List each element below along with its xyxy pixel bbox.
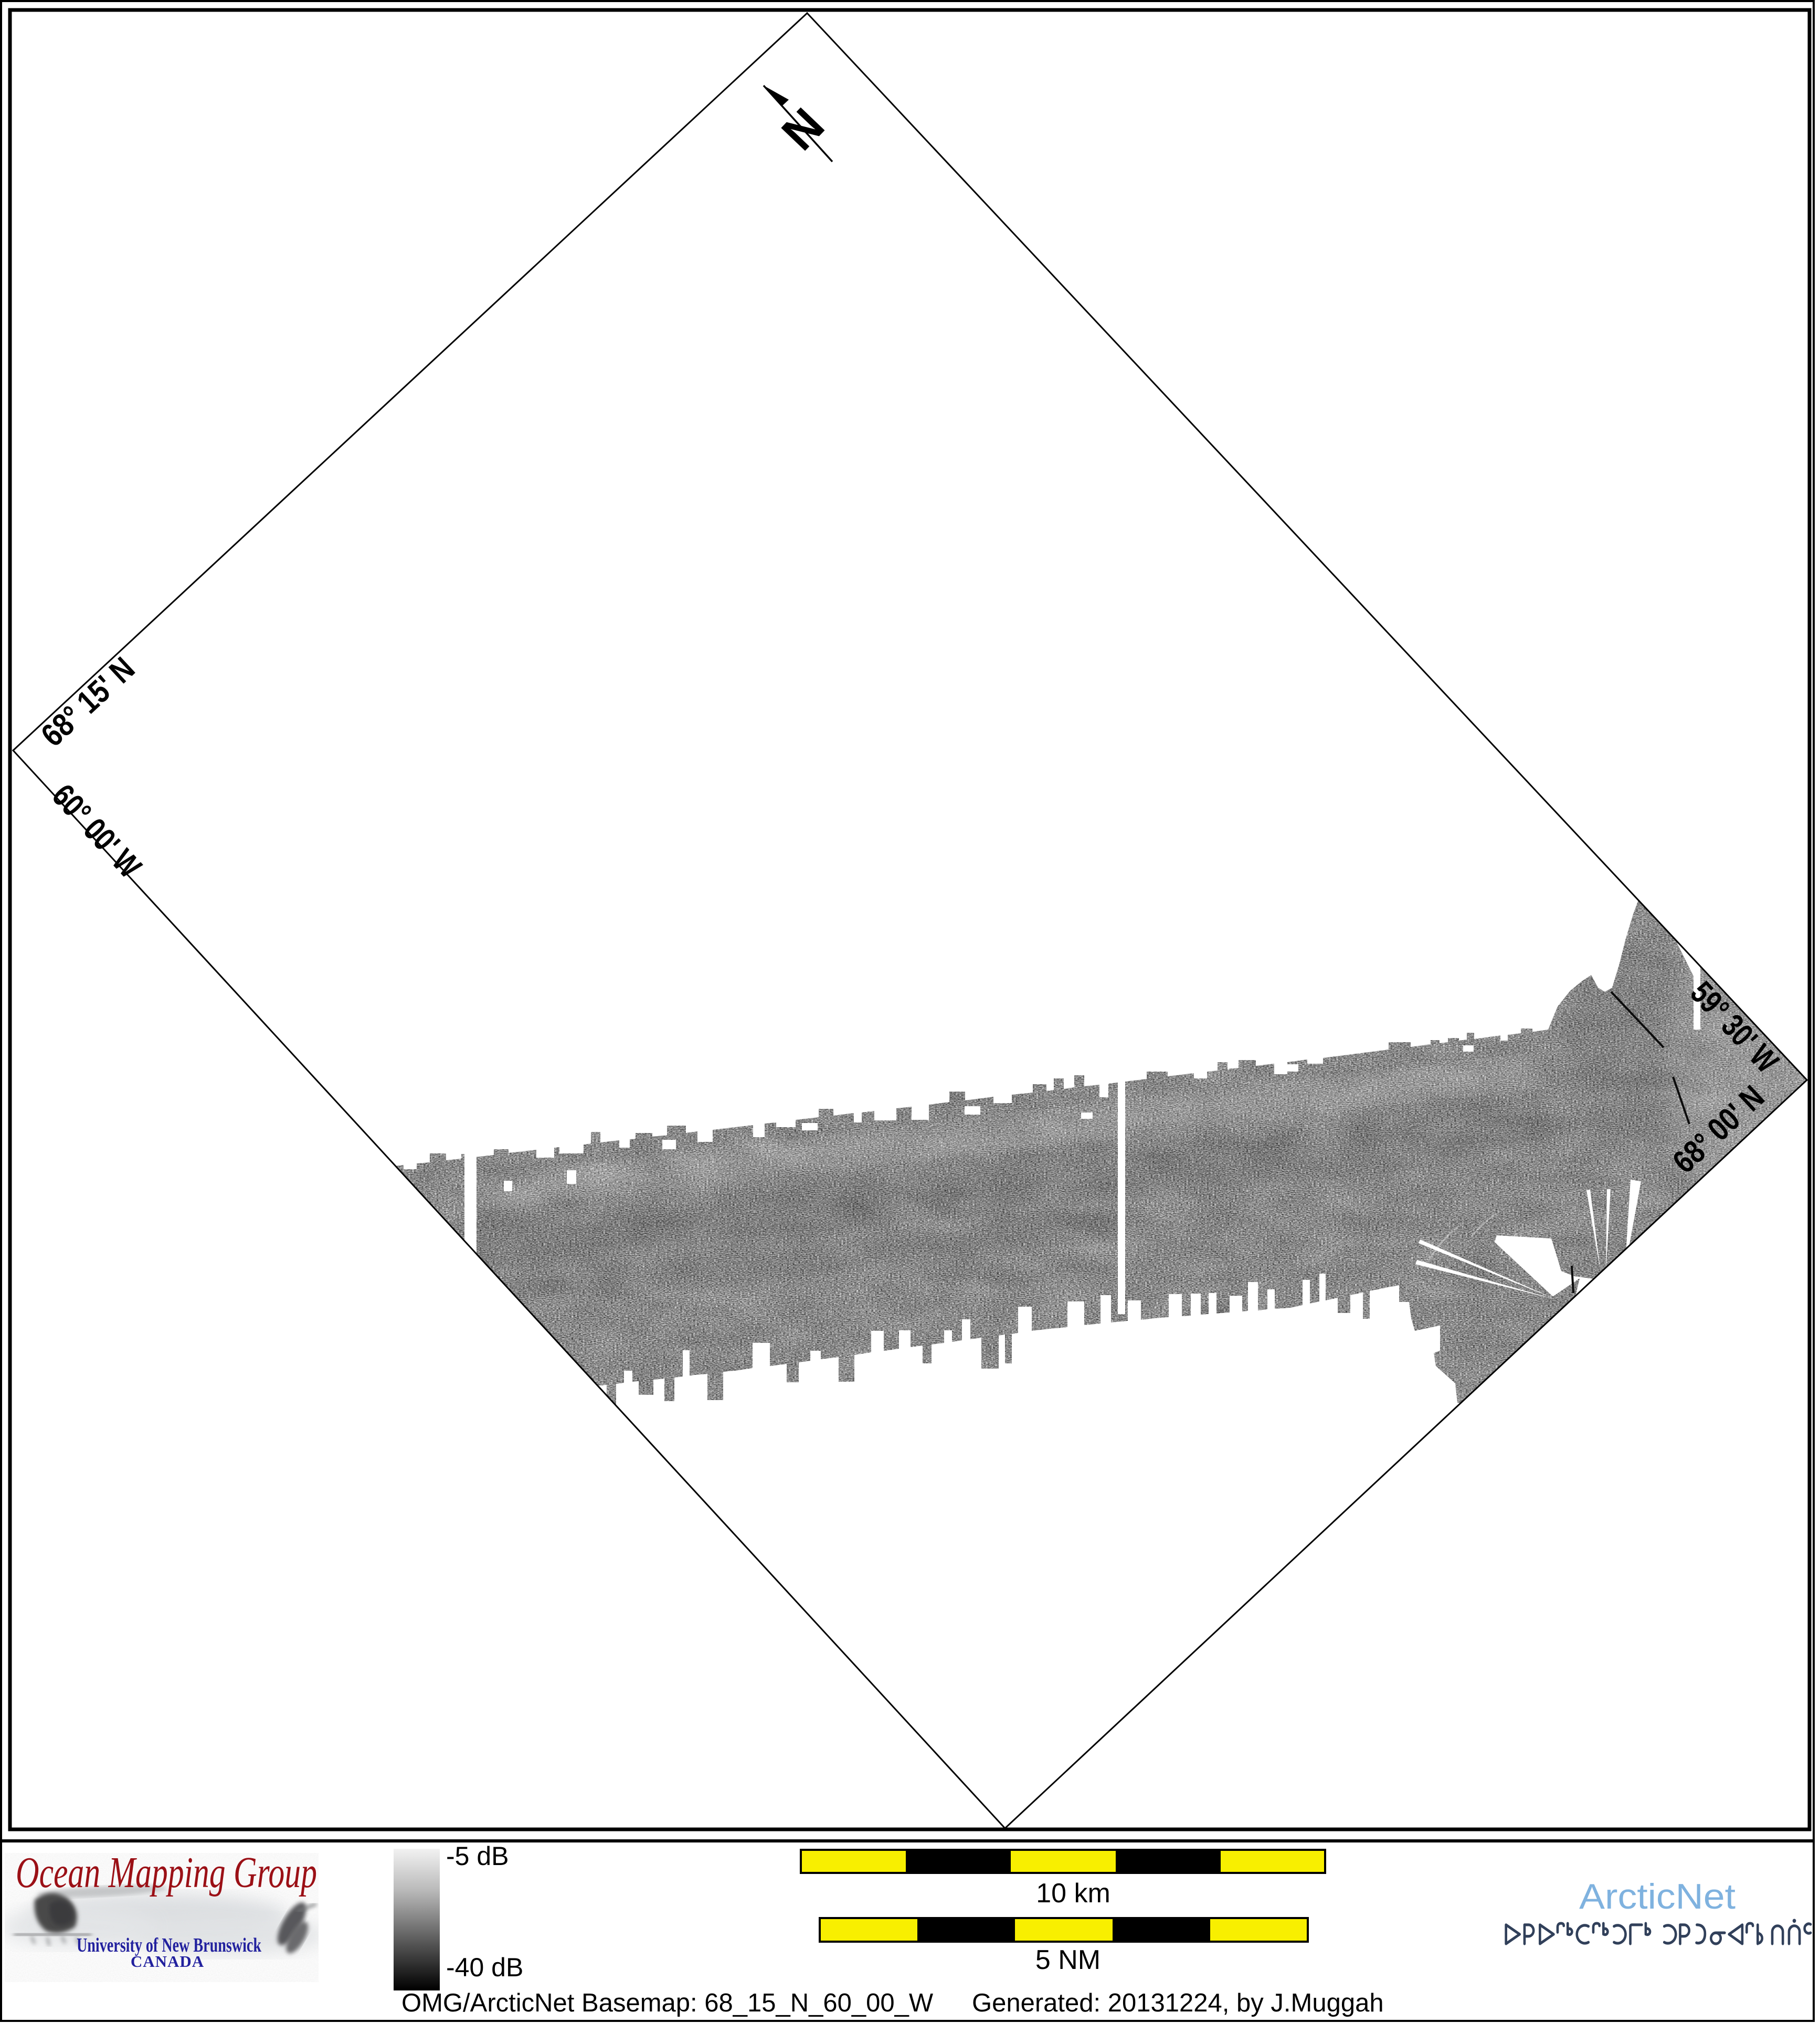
svg-text:10 km: 10 km	[1036, 1878, 1110, 1909]
svg-text:Ocean Mapping Group: Ocean Mapping Group	[16, 1848, 317, 1897]
svg-text:ArcticNet: ArcticNet	[1579, 1877, 1736, 1916]
svg-text:Generated: 20131224, by J.Mugg: Generated: 20131224, by J.Muggah	[972, 1989, 1384, 2017]
svg-text:OMG/ArcticNet Basemap: 68_15_N: OMG/ArcticNet Basemap: 68_15_N_60_00_W	[401, 1989, 934, 2017]
svg-text:5 NM: 5 NM	[1035, 1945, 1101, 1975]
svg-text:CANADA: CANADA	[131, 1952, 204, 1971]
svg-text:-40 dB: -40 dB	[446, 1953, 523, 1982]
svg-text:-5 dB: -5 dB	[446, 1841, 509, 1871]
